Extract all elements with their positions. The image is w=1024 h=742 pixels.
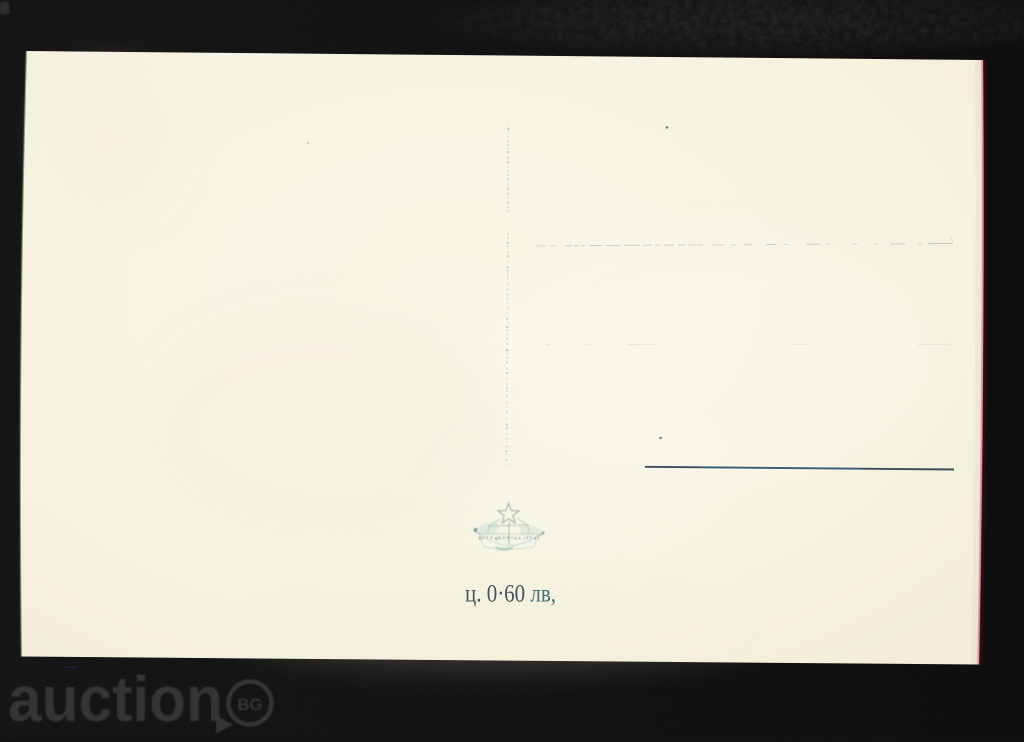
svg-text:ц. 0·60 лв,: ц. 0·60 лв, [465,581,556,608]
svg-text:auction: auction [8,663,223,735]
svg-text:BG: BG [237,695,263,714]
